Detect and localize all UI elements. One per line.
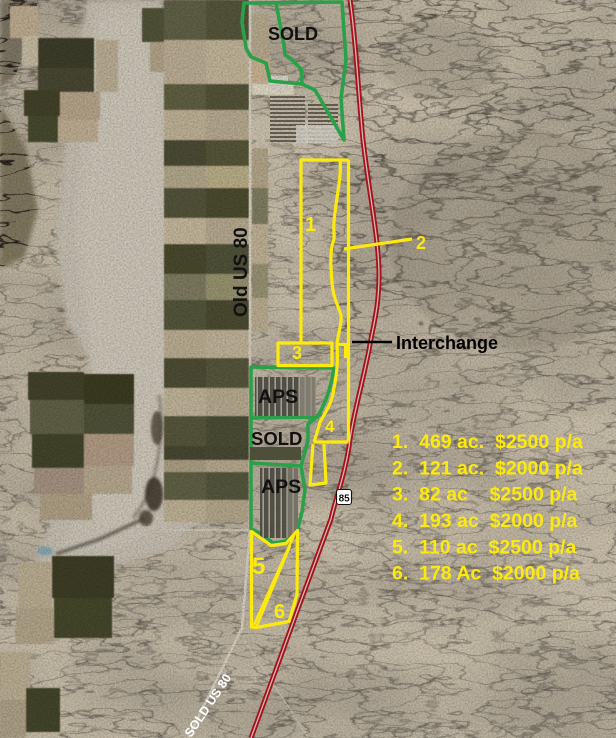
svg-text:Interchange: Interchange: [396, 333, 498, 353]
svg-text:SOLD: SOLD: [251, 428, 302, 449]
svg-text:2. 121 ac. $2000 p/a: 2. 121 ac. $2000 p/a: [392, 457, 583, 479]
svg-text:85: 85: [339, 494, 351, 505]
svg-text:Old US 80: Old US 80: [231, 227, 252, 317]
svg-text:4. 193 ac $2000 p/a: 4. 193 ac $2000 p/a: [392, 510, 578, 532]
svg-text:3. 82 ac $2500 p/a: 3. 82 ac $2500 p/a: [392, 484, 578, 506]
svg-text:1. 469 ac. $2500 p/a: 1. 469 ac. $2500 p/a: [392, 431, 583, 453]
svg-text:SOLD: SOLD: [268, 24, 318, 44]
svg-text:3: 3: [292, 343, 302, 363]
svg-text:APS: APS: [261, 476, 301, 498]
svg-text:APS: APS: [258, 386, 298, 408]
svg-text:5: 5: [252, 553, 265, 580]
svg-text:5. 110 ac $2500 p/a: 5. 110 ac $2500 p/a: [392, 536, 576, 558]
svg-text:6: 6: [274, 601, 285, 623]
svg-text:2: 2: [416, 233, 426, 253]
svg-text:6. 178 Ac $2000 p/a: 6. 178 Ac $2000 p/a: [392, 563, 580, 585]
svg-text:1: 1: [305, 214, 316, 236]
svg-text:4: 4: [325, 417, 335, 436]
